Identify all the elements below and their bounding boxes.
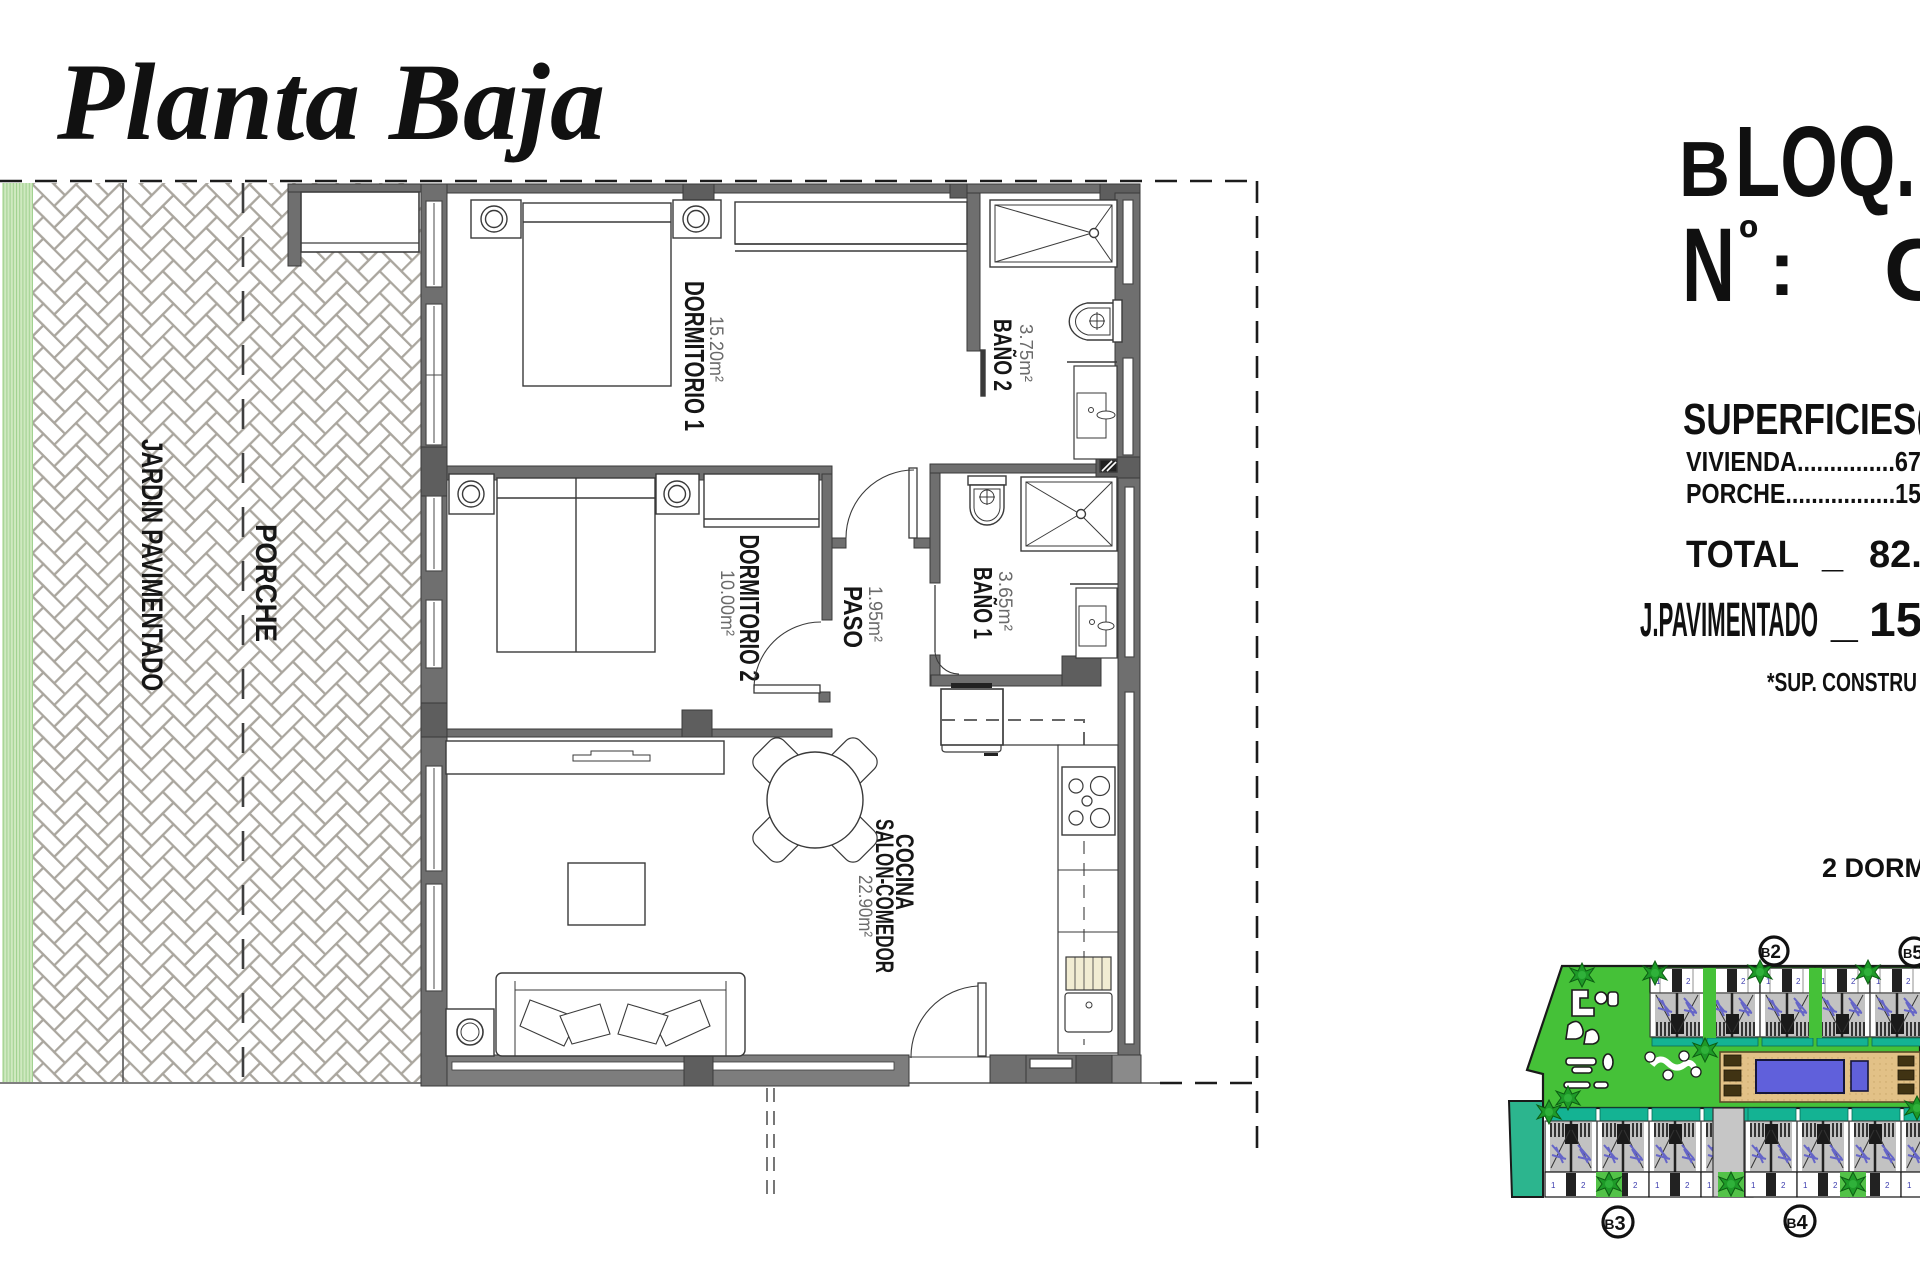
svg-text:TOTAL: TOTAL: [1686, 534, 1799, 576]
svg-text:B5: B5: [1903, 943, 1920, 964]
svg-text:BAÑO 2: BAÑO 2: [988, 319, 1018, 391]
svg-text:1: 1: [1551, 1181, 1556, 1190]
svg-text:2: 2: [1581, 1181, 1586, 1190]
svg-text:J.PAVIMENTADO: J.PAVIMENTADO: [1640, 594, 1818, 647]
svg-text:*SUP. CONSTRU: *SUP. CONSTRU: [1767, 667, 1917, 697]
svg-text:_: _: [1821, 534, 1844, 576]
svg-text:PORCHE: PORCHE: [249, 524, 282, 642]
svg-text::: :: [1769, 224, 1795, 312]
svg-text:3.65m²: 3.65m²: [994, 571, 1015, 631]
svg-text:SUPERFICIES(: SUPERFICIES(: [1683, 395, 1920, 444]
svg-text:15.20m²: 15.20m²: [705, 316, 726, 382]
svg-text:C: C: [1884, 220, 1920, 319]
svg-text:22.90m²: 22.90m²: [854, 875, 875, 937]
svg-text:VIVIENDA...............67: VIVIENDA...............67: [1686, 446, 1920, 477]
svg-text:B: B: [1679, 125, 1730, 213]
svg-text:PORCHE.................15: PORCHE.................15: [1686, 478, 1920, 509]
svg-text:B4: B4: [1786, 1212, 1808, 1234]
svg-text:2 DORM: 2 DORM: [1822, 853, 1920, 883]
svg-text:Planta Baja: Planta Baja: [56, 41, 605, 163]
svg-text:º: º: [1739, 210, 1758, 268]
svg-text:LOQ.: LOQ.: [1735, 106, 1916, 218]
svg-text:_: _: [1830, 594, 1859, 647]
svg-text:10.00m²: 10.00m²: [716, 570, 737, 636]
svg-text:N: N: [1682, 207, 1735, 324]
svg-text:82.: 82.: [1869, 534, 1920, 576]
svg-text:PASO: PASO: [838, 586, 868, 648]
svg-text:BAÑO 1: BAÑO 1: [968, 567, 998, 639]
svg-text:1.95m²: 1.95m²: [864, 586, 885, 642]
svg-text:3.75m²: 3.75m²: [1016, 324, 1036, 382]
svg-text:B2: B2: [1761, 942, 1781, 963]
svg-text:15.: 15.: [1869, 594, 1920, 647]
svg-text:JARDIN PAVIMENTADO: JARDIN PAVIMENTADO: [135, 439, 168, 691]
svg-text:B3: B3: [1604, 1213, 1625, 1235]
svg-text:2: 2: [1686, 977, 1691, 986]
